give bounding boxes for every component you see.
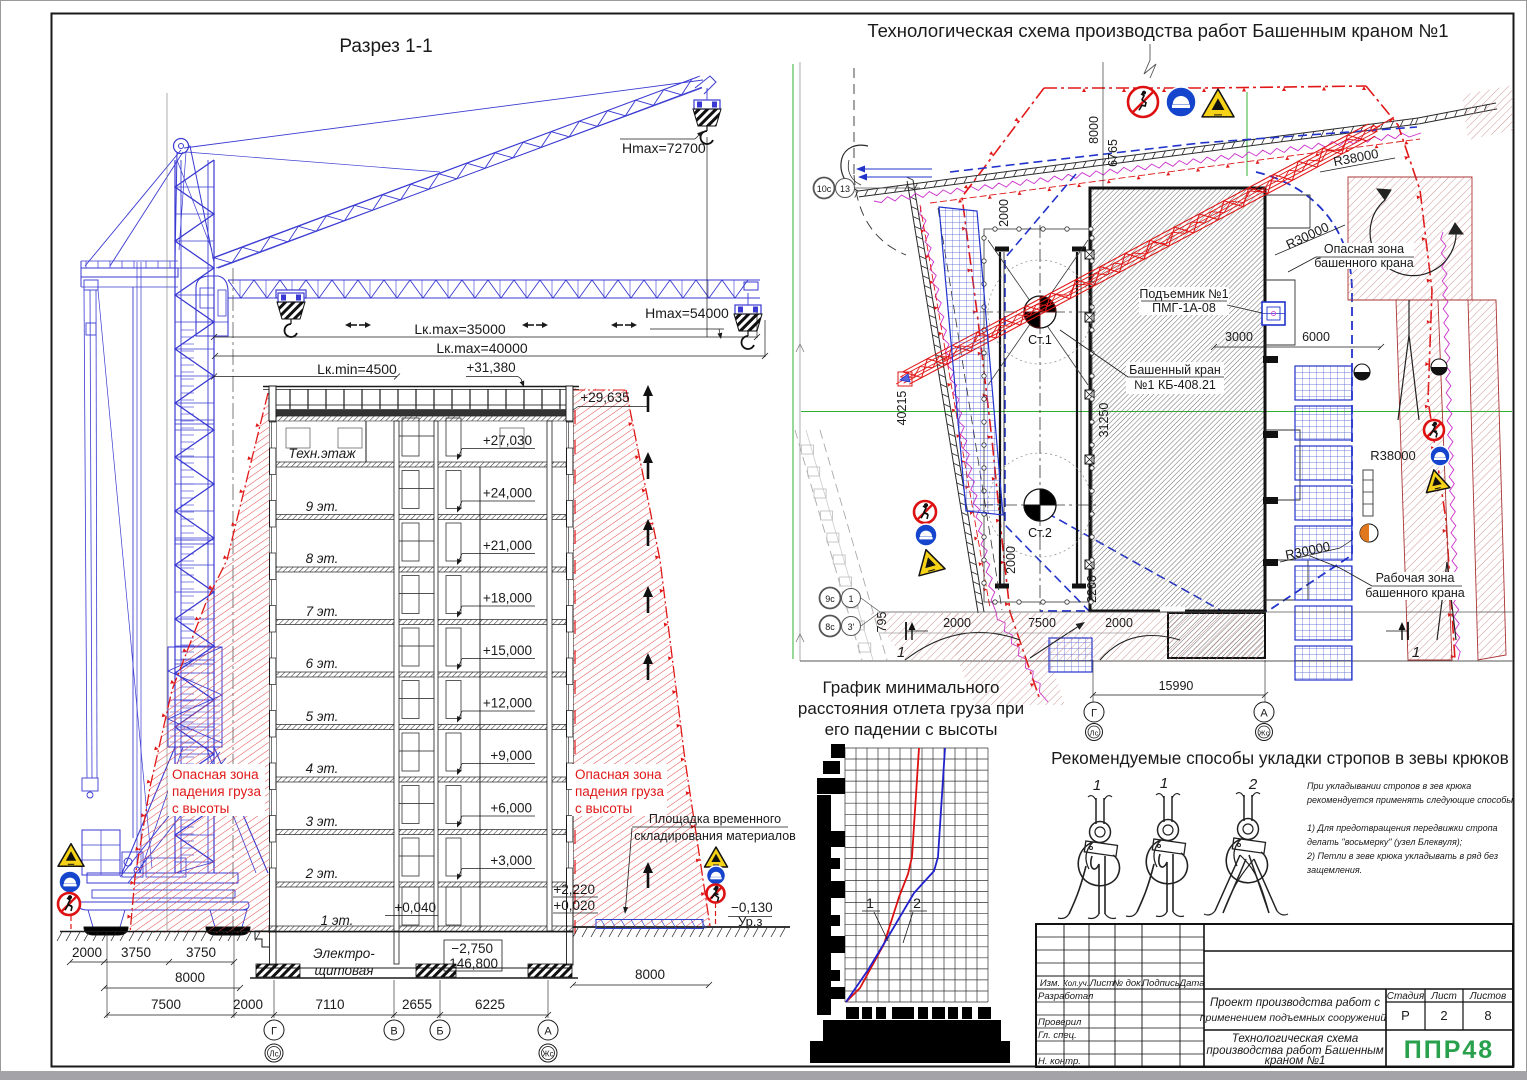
svg-text:Электро-: Электро-: [313, 946, 375, 961]
svg-text:3750: 3750: [121, 945, 151, 960]
svg-text:А: А: [1260, 708, 1268, 720]
svg-text:Технологическая схема производ: Технологическая схема производства работ…: [867, 20, 1448, 41]
svg-text:Опасная зона: Опасная зона: [1324, 242, 1404, 256]
svg-text:защемления.: защемления.: [1306, 865, 1362, 875]
svg-text:2: 2: [913, 895, 921, 911]
svg-text:Башенный кран: Башенный кран: [1129, 363, 1221, 377]
svg-text:1: 1: [1412, 644, 1420, 661]
svg-text:2) Петли в зеве крюка укладыва: 2) Петли в зеве крюка укладывать в ряд б…: [1306, 851, 1498, 861]
svg-text:2 эт.: 2 эт.: [305, 866, 339, 881]
svg-text:7 эт.: 7 эт.: [306, 604, 339, 619]
svg-text:Lк.min=4500: Lк.min=4500: [317, 361, 397, 377]
svg-text:Проверил: Проверил: [1038, 1017, 1082, 1028]
svg-text:№1 КБ-408.21: №1 КБ-408.21: [1134, 378, 1216, 392]
svg-text:рекомендуется применять следую: рекомендуется применять следующие способ…: [1306, 795, 1513, 805]
svg-text:ПМГ-1А-08: ПМГ-1А-08: [1152, 301, 1216, 315]
svg-text:3750: 3750: [186, 945, 216, 960]
svg-text:40215: 40215: [895, 391, 909, 426]
svg-text:Гл. спец.: Гл. спец.: [1038, 1030, 1077, 1041]
svg-text:7110: 7110: [315, 997, 344, 1012]
svg-text:2000: 2000: [1105, 616, 1133, 630]
svg-text:График минимального: График минимального: [823, 678, 1000, 697]
svg-text:5 эт.: 5 эт.: [306, 709, 339, 724]
svg-text:3': 3': [848, 622, 855, 632]
svg-text:Технологическая схема: Технологическая схема: [1232, 1033, 1359, 1045]
svg-text:Разрез 1-1: Разрез 1-1: [339, 36, 432, 57]
svg-text:8000: 8000: [175, 970, 205, 985]
svg-text:Подъемник №1: Подъемник №1: [1139, 287, 1228, 301]
svg-text:Жс: Жс: [1259, 729, 1270, 738]
svg-text:6000: 6000: [1302, 330, 1330, 344]
svg-text:А: А: [544, 1026, 552, 1038]
svg-text:Изм.: Изм.: [1040, 978, 1060, 989]
svg-text:Опасная зона: Опасная зона: [575, 767, 662, 782]
svg-text:с высоты: с высоты: [575, 801, 632, 816]
svg-text:Подпись: Подпись: [1142, 978, 1180, 989]
svg-text:Дата: Дата: [1178, 978, 1204, 989]
svg-text:+29,635: +29,635: [580, 390, 629, 405]
svg-text:Жс: Жс: [542, 1050, 553, 1059]
svg-text:Лист: Лист: [1089, 978, 1115, 989]
svg-text:применением подъемных сооружен: применением подъемных сооружений: [1200, 1012, 1387, 1024]
svg-text:ППР48: ППР48: [1404, 1036, 1494, 1064]
svg-text:падения груза: падения груза: [172, 784, 261, 799]
svg-text:+31,380: +31,380: [466, 360, 515, 375]
svg-text:падения груза: падения груза: [575, 784, 664, 799]
svg-text:6225: 6225: [475, 997, 505, 1012]
svg-text:Площадка временного: Площадка временного: [649, 812, 781, 826]
svg-text:13: 13: [840, 184, 850, 194]
svg-text:2655: 2655: [402, 997, 432, 1012]
svg-text:8000: 8000: [635, 967, 665, 982]
svg-text:10с: 10с: [817, 184, 832, 194]
svg-text:2000: 2000: [943, 616, 971, 630]
svg-text:15990: 15990: [1159, 679, 1194, 693]
svg-text:Опасная зона: Опасная зона: [172, 767, 259, 782]
svg-text:2200: 2200: [1085, 575, 1099, 603]
svg-text:2: 2: [1440, 1008, 1447, 1023]
svg-text:+18,000: +18,000: [483, 591, 532, 606]
svg-text:башенного крана: башенного крана: [1314, 256, 1414, 270]
svg-text:№ док.: № док.: [1113, 978, 1144, 989]
svg-text:Н. контр.: Н. контр.: [1038, 1056, 1081, 1067]
svg-text:8с: 8с: [825, 622, 835, 632]
svg-text:2000: 2000: [997, 199, 1011, 227]
svg-text:1: 1: [897, 644, 905, 661]
svg-text:+24,000: +24,000: [483, 486, 532, 501]
svg-text:Hmax=72700: Hmax=72700: [622, 140, 706, 156]
svg-text:1: 1: [866, 895, 874, 911]
svg-text:2000: 2000: [1004, 546, 1018, 574]
svg-text:1: 1: [848, 594, 853, 604]
svg-text:При укладывании стропов в зев: При укладывании стропов в зев крюка: [1307, 781, 1471, 791]
svg-text:Ст.1: Ст.1: [1028, 333, 1052, 347]
svg-text:3 эт.: 3 эт.: [306, 814, 339, 829]
svg-text:щитовая: щитовая: [314, 963, 373, 978]
svg-text:1: 1: [1160, 775, 1168, 792]
svg-text:3000: 3000: [1225, 330, 1253, 344]
svg-text:+21,000: +21,000: [483, 538, 532, 553]
svg-text:складирования материалов: складирования материалов: [634, 829, 796, 843]
svg-text:+0,040: +0,040: [394, 900, 436, 915]
svg-text:делать "восьмерку" (узел Блекв: делать "восьмерку" (узел Блеквуля);: [1307, 837, 1463, 847]
svg-text:2: 2: [1248, 776, 1258, 793]
svg-text:+15,000: +15,000: [483, 643, 532, 658]
svg-text:7500: 7500: [151, 997, 181, 1012]
svg-text:7500: 7500: [1028, 616, 1056, 630]
svg-text:краном №1: краном №1: [1265, 1055, 1326, 1067]
svg-text:6765: 6765: [1106, 139, 1120, 167]
svg-text:+2,220: +2,220: [553, 882, 595, 897]
svg-text:Лс: Лс: [269, 1050, 278, 1059]
svg-text:−2,750: −2,750: [451, 941, 493, 956]
svg-text:В: В: [390, 1026, 397, 1038]
svg-text:Lк.max=35000: Lк.max=35000: [414, 321, 506, 337]
svg-text:+9,000: +9,000: [490, 748, 532, 763]
svg-text:Разработал: Разработал: [1038, 991, 1094, 1002]
svg-text:6 эт.: 6 эт.: [306, 656, 339, 671]
svg-text:31250: 31250: [1097, 403, 1111, 438]
svg-text:4 эт.: 4 эт.: [306, 761, 339, 776]
svg-text:−0,130: −0,130: [731, 900, 773, 915]
svg-text:Г: Г: [271, 1026, 277, 1038]
svg-text:Рабочая зона: Рабочая зона: [1376, 571, 1455, 585]
svg-text:1) Для предотвращения перед: 1) Для предотвращения передвижки стропа: [1307, 823, 1498, 833]
svg-text:+6,000: +6,000: [490, 801, 532, 816]
svg-text:Листов: Листов: [1469, 991, 1506, 1002]
svg-text:795: 795: [875, 612, 889, 633]
svg-text:+12,000: +12,000: [483, 696, 532, 711]
svg-text:146,800: 146,800: [449, 956, 498, 971]
svg-text:2000: 2000: [233, 997, 263, 1012]
svg-text:Hmax=54000: Hmax=54000: [645, 305, 729, 321]
svg-text:+3,000: +3,000: [490, 853, 532, 868]
svg-text:Рекомендуемые способы укладки: Рекомендуемые способы укладки стропов в …: [1051, 748, 1509, 768]
svg-text:Lк.max=40000: Lк.max=40000: [436, 340, 528, 356]
svg-text:+0,020: +0,020: [553, 898, 595, 913]
svg-text:Техн.этаж: Техн.этаж: [288, 446, 356, 461]
svg-text:Г: Г: [1091, 708, 1097, 720]
svg-text:1 эт.: 1 эт.: [321, 913, 354, 928]
svg-text:9с: 9с: [825, 594, 835, 604]
svg-text:Лист: Лист: [1430, 991, 1457, 1002]
svg-text:8: 8: [1484, 1008, 1491, 1023]
svg-text:Кол.уч.: Кол.уч.: [1063, 979, 1089, 988]
svg-text:Р: Р: [1401, 1008, 1410, 1023]
svg-text:2000: 2000: [72, 945, 102, 960]
svg-text:9 эт.: 9 эт.: [306, 499, 339, 514]
svg-text:R38000: R38000: [1370, 448, 1416, 463]
svg-text:расстояния отлета груза при: расстояния отлета груза при: [798, 699, 1024, 718]
svg-text:Б: Б: [436, 1026, 443, 1038]
svg-text:8 эт.: 8 эт.: [306, 551, 339, 566]
svg-text:Ст.2: Ст.2: [1028, 526, 1052, 540]
svg-text:с высоты: с высоты: [172, 801, 229, 816]
svg-text:башенного крана: башенного крана: [1365, 586, 1465, 600]
svg-text:8000: 8000: [1087, 116, 1101, 144]
svg-text:Стадия: Стадия: [1387, 991, 1425, 1002]
svg-text:его падении с высоты: его падении с высоты: [825, 720, 998, 739]
svg-text:Лс: Лс: [1090, 729, 1099, 738]
svg-text:1: 1: [1093, 777, 1101, 794]
svg-text:+27,030: +27,030: [483, 433, 532, 448]
svg-text:Проект производства работ с: Проект производства работ с: [1210, 997, 1380, 1009]
